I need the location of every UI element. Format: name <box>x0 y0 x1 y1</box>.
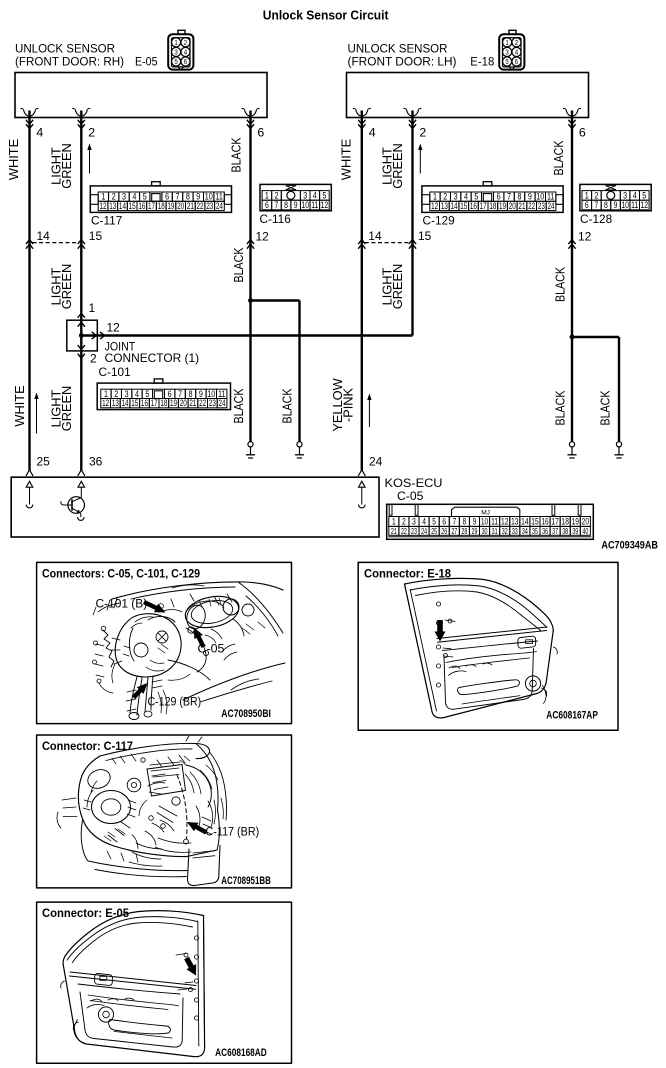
svg-text:15: 15 <box>460 201 467 211</box>
svg-text:24: 24 <box>548 201 556 211</box>
svg-text:18: 18 <box>561 517 569 527</box>
svg-text:12: 12 <box>256 230 270 244</box>
svg-text:19: 19 <box>170 398 177 408</box>
svg-text:4: 4 <box>313 191 317 201</box>
svg-text:1: 1 <box>392 517 396 527</box>
svg-text:2: 2 <box>90 352 97 366</box>
svg-text:15: 15 <box>418 229 432 243</box>
svg-text:3: 3 <box>505 49 509 57</box>
svg-text:7: 7 <box>594 200 598 210</box>
svg-text:19: 19 <box>572 517 580 527</box>
svg-text:26: 26 <box>441 527 447 537</box>
svg-text:AC708951BB: AC708951BB <box>221 875 271 887</box>
svg-text:12: 12 <box>640 200 648 210</box>
svg-text:25: 25 <box>431 527 437 537</box>
svg-text:38: 38 <box>562 527 568 537</box>
svg-text:WHITE: WHITE <box>12 385 27 426</box>
svg-text:WHITE: WHITE <box>6 139 21 180</box>
svg-text:20: 20 <box>177 201 184 211</box>
svg-text:2: 2 <box>274 191 278 201</box>
svg-text:21: 21 <box>518 201 525 211</box>
svg-text:13: 13 <box>112 398 119 408</box>
svg-text:9: 9 <box>614 200 618 210</box>
svg-text:2: 2 <box>402 517 406 527</box>
svg-text:22: 22 <box>528 201 535 211</box>
svg-text:18: 18 <box>160 398 167 408</box>
svg-text:Connector: E-18: Connector: E-18 <box>364 566 451 580</box>
svg-text:BLACK: BLACK <box>231 388 246 423</box>
svg-text:15: 15 <box>89 229 103 243</box>
svg-text:2: 2 <box>88 126 95 140</box>
svg-text:12: 12 <box>102 398 109 408</box>
svg-text:5: 5 <box>505 59 509 67</box>
svg-text:17: 17 <box>551 517 558 527</box>
svg-text:9: 9 <box>294 200 298 210</box>
svg-text:11: 11 <box>631 200 638 210</box>
svg-text:GREEN: GREEN <box>59 143 74 189</box>
svg-text:Connectors: C-05, C-101, C-129: Connectors: C-05, C-101, C-129 <box>42 566 200 580</box>
svg-text:(FRONT DOOR: LH): (FRONT DOOR: LH) <box>348 55 457 69</box>
svg-text:1: 1 <box>89 301 96 315</box>
svg-text:34: 34 <box>522 527 528 537</box>
svg-text:14: 14 <box>451 201 459 211</box>
svg-text:GREEN: GREEN <box>390 143 405 189</box>
svg-text:BLACK: BLACK <box>228 137 243 172</box>
svg-text:14: 14 <box>37 229 51 243</box>
svg-text:4: 4 <box>633 191 637 201</box>
svg-text:39: 39 <box>572 527 578 537</box>
svg-text:20: 20 <box>509 201 516 211</box>
svg-text:WHITE: WHITE <box>339 139 354 180</box>
svg-text:16: 16 <box>141 398 148 408</box>
svg-text:36: 36 <box>542 527 548 537</box>
svg-text:14: 14 <box>119 201 127 211</box>
svg-text:28: 28 <box>461 527 467 537</box>
svg-text:4: 4 <box>184 49 188 57</box>
svg-text:23: 23 <box>209 398 216 408</box>
svg-text:40: 40 <box>582 527 588 537</box>
svg-text:23: 23 <box>206 201 213 211</box>
svg-text:9: 9 <box>473 517 477 527</box>
svg-text:4: 4 <box>422 517 426 527</box>
svg-text:10: 10 <box>621 200 629 210</box>
svg-text:3: 3 <box>174 49 178 57</box>
svg-text:29: 29 <box>472 527 478 537</box>
svg-text:4: 4 <box>36 126 43 140</box>
svg-text:30: 30 <box>482 527 488 537</box>
svg-text:22: 22 <box>199 398 206 408</box>
svg-text:6: 6 <box>257 126 264 140</box>
svg-text:2: 2 <box>419 126 426 140</box>
svg-text:17: 17 <box>480 201 487 211</box>
svg-text:19: 19 <box>167 201 174 211</box>
svg-text:22: 22 <box>401 527 407 537</box>
svg-text:1: 1 <box>174 39 178 47</box>
svg-text:12: 12 <box>578 230 592 244</box>
svg-text:BLACK: BLACK <box>231 247 246 282</box>
svg-text:C-116: C-116 <box>260 212 292 226</box>
svg-text:GREEN: GREEN <box>59 264 74 310</box>
svg-text:1: 1 <box>265 191 269 201</box>
svg-text:5: 5 <box>174 59 178 67</box>
svg-text:21: 21 <box>391 527 397 537</box>
svg-text:MJ: MJ <box>481 510 490 517</box>
svg-text:16: 16 <box>470 201 477 211</box>
svg-text:BLACK: BLACK <box>551 140 566 175</box>
svg-text:13: 13 <box>109 201 116 211</box>
svg-text:20: 20 <box>180 398 187 408</box>
svg-text:5: 5 <box>432 517 436 527</box>
svg-text:GREEN: GREEN <box>59 386 74 432</box>
svg-text:27: 27 <box>451 527 457 537</box>
svg-text:7: 7 <box>275 200 279 210</box>
svg-text:C-129 (BR): C-129 (BR) <box>148 695 202 709</box>
svg-text:18: 18 <box>158 201 165 211</box>
svg-text:36: 36 <box>89 455 103 469</box>
svg-text:12: 12 <box>501 517 508 527</box>
svg-text:23: 23 <box>411 527 417 537</box>
svg-text:6: 6 <box>442 517 446 527</box>
svg-text:35: 35 <box>532 527 538 537</box>
svg-text:32: 32 <box>502 527 508 537</box>
svg-text:6: 6 <box>515 59 519 67</box>
svg-text:6: 6 <box>585 200 589 210</box>
svg-text:24: 24 <box>369 455 383 469</box>
svg-text:16: 16 <box>541 517 549 527</box>
svg-text:AC608167AP: AC608167AP <box>546 709 598 721</box>
svg-text:2: 2 <box>594 191 598 201</box>
svg-text:BLACK: BLACK <box>552 267 567 302</box>
svg-text:1: 1 <box>585 191 589 201</box>
svg-text:15: 15 <box>531 517 539 527</box>
svg-text:C-129: C-129 <box>423 214 455 228</box>
svg-text:14: 14 <box>122 398 130 408</box>
svg-text:31: 31 <box>492 527 498 537</box>
svg-text:10: 10 <box>301 200 309 210</box>
svg-text:E-05: E-05 <box>135 55 158 69</box>
svg-text:C-05: C-05 <box>198 642 225 656</box>
svg-text:C-101: C-101 <box>99 365 131 379</box>
svg-text:AC708950BI: AC708950BI <box>221 708 271 720</box>
svg-text:12: 12 <box>107 321 121 335</box>
svg-text:8: 8 <box>604 200 608 210</box>
svg-text:21: 21 <box>187 201 194 211</box>
svg-text:6: 6 <box>579 126 586 140</box>
svg-text:C-128: C-128 <box>580 212 613 226</box>
svg-text:12: 12 <box>431 201 438 211</box>
svg-text:11: 11 <box>491 517 498 527</box>
svg-text:3: 3 <box>623 191 627 201</box>
svg-text:3: 3 <box>412 517 416 527</box>
svg-text:12: 12 <box>321 200 329 210</box>
svg-text:16: 16 <box>138 201 145 211</box>
svg-text:25: 25 <box>37 455 51 469</box>
svg-text:7: 7 <box>452 517 456 527</box>
svg-text:5: 5 <box>322 191 326 201</box>
svg-text:CONNECTOR (1): CONNECTOR (1) <box>105 351 200 365</box>
svg-text:11: 11 <box>311 200 318 210</box>
svg-text:33: 33 <box>512 527 518 537</box>
svg-text:Unlock Sensor Circuit: Unlock Sensor Circuit <box>263 7 389 22</box>
svg-text:15: 15 <box>131 398 138 408</box>
svg-text:6: 6 <box>265 200 269 210</box>
svg-text:4: 4 <box>369 126 376 140</box>
svg-text:19: 19 <box>499 201 506 211</box>
svg-text:37: 37 <box>552 527 558 537</box>
svg-text:22: 22 <box>197 201 204 211</box>
svg-text:14: 14 <box>368 229 382 243</box>
svg-text:2: 2 <box>184 39 188 47</box>
svg-text:BLACK: BLACK <box>598 390 613 425</box>
svg-text:UNLOCK SENSOR: UNLOCK SENSOR <box>348 42 448 56</box>
svg-text:GREEN: GREEN <box>390 264 405 310</box>
svg-text:AC709349AB: AC709349AB <box>601 540 658 552</box>
svg-text:2: 2 <box>515 39 519 47</box>
svg-text:E-18: E-18 <box>470 55 494 69</box>
svg-text:21: 21 <box>189 398 196 408</box>
svg-text:15: 15 <box>129 201 136 211</box>
svg-text:3: 3 <box>303 191 307 201</box>
svg-text:C-117: C-117 <box>91 214 122 228</box>
svg-text:13: 13 <box>441 201 448 211</box>
svg-text:5: 5 <box>642 191 646 201</box>
svg-text:20: 20 <box>582 517 590 527</box>
svg-text:6: 6 <box>184 59 188 67</box>
svg-text:8: 8 <box>284 200 288 210</box>
svg-text:UNLOCK SENSOR: UNLOCK SENSOR <box>15 42 115 56</box>
svg-text:12: 12 <box>100 201 107 211</box>
svg-text:17: 17 <box>151 398 158 408</box>
svg-text:24: 24 <box>219 398 227 408</box>
svg-text:17: 17 <box>148 201 155 211</box>
svg-text:1: 1 <box>505 39 509 47</box>
svg-text:18: 18 <box>489 201 496 211</box>
svg-text:8: 8 <box>463 517 467 527</box>
svg-text:23: 23 <box>538 201 545 211</box>
svg-text:BLACK: BLACK <box>280 388 295 423</box>
svg-text:AC608168AD: AC608168AD <box>215 1047 267 1059</box>
svg-text:C-101 (B): C-101 (B) <box>96 597 148 611</box>
svg-text:C-05: C-05 <box>397 489 424 503</box>
svg-text:24: 24 <box>216 201 224 211</box>
svg-text:(FRONT DOOR: RH): (FRONT DOOR: RH) <box>15 55 124 69</box>
svg-text:10: 10 <box>481 517 489 527</box>
svg-text:Connector: E-05: Connector: E-05 <box>42 906 129 920</box>
svg-text:4: 4 <box>515 49 519 57</box>
svg-text:BLACK: BLACK <box>552 390 567 425</box>
svg-text:14: 14 <box>521 517 529 527</box>
svg-text:-PINK: -PINK <box>341 387 356 422</box>
svg-text:C-117 (BR): C-117 (BR) <box>206 825 260 839</box>
svg-text:24: 24 <box>421 527 427 537</box>
svg-text:13: 13 <box>511 517 519 527</box>
